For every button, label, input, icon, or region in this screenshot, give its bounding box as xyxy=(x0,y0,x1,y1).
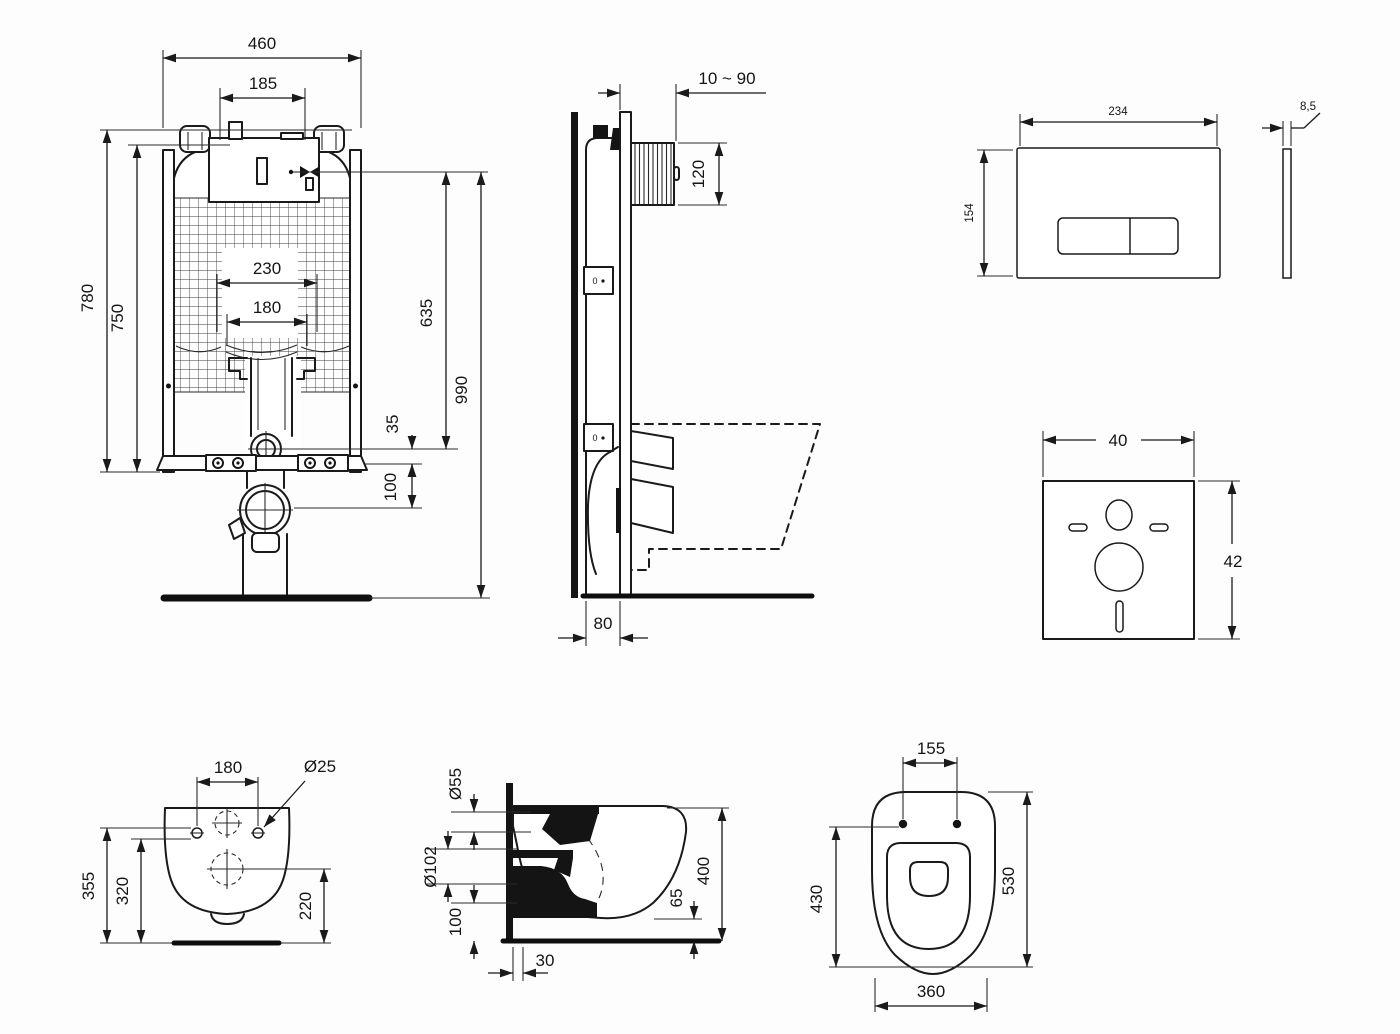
pan-bracket-upper xyxy=(631,431,673,469)
dim-seat-length: 430 xyxy=(807,885,826,913)
dim-valve-height-635: 635 xyxy=(417,299,436,327)
wall-section xyxy=(571,112,578,598)
insulation-mat xyxy=(1043,481,1194,639)
dim-height-320: 320 xyxy=(113,877,132,905)
dim-plate-width: 234 xyxy=(1108,106,1128,118)
dim-inlet-dia: Ø55 xyxy=(446,768,465,800)
seat-hinge-right xyxy=(953,820,961,828)
flush-plate-front-view: 234 154 xyxy=(964,106,1220,278)
seat-hinge-left xyxy=(899,820,907,828)
frame-profile xyxy=(586,138,620,595)
dim-offset-30: 30 xyxy=(536,951,555,970)
sound-insulation-mat-view: 40 42 xyxy=(1043,431,1242,639)
dim-fixing-spacing: 180 xyxy=(214,758,242,777)
service-box-slot xyxy=(257,158,267,184)
dim-outlet-dia: Ø102 xyxy=(421,846,440,888)
technical-drawing-canvas: 460 185 780 750 230 180 635 990 xyxy=(0,0,1400,1034)
dim-mat-height: 42 xyxy=(1224,552,1243,571)
installation-drawing: 460 185 780 750 230 180 635 990 xyxy=(0,0,1400,1034)
dim-outlet-height: 100 xyxy=(446,908,465,936)
wc-top-view: 155 530 430 360 xyxy=(807,739,1033,1012)
flush-plate-edge xyxy=(1283,149,1291,278)
dim-frame-height: 780 xyxy=(78,284,97,312)
fixing-point-label: 0 xyxy=(592,276,597,286)
fixing-point-lower: 0 xyxy=(584,424,613,451)
corrugated-flush-bend xyxy=(631,143,679,205)
frame-left-rail xyxy=(163,150,174,472)
dim-frame-width: 460 xyxy=(248,34,276,53)
flush-buttons xyxy=(1058,218,1178,254)
dim-plate-height: 154 xyxy=(964,203,976,223)
dim-mat-width: 40 xyxy=(1109,431,1128,450)
dim-plate-thickness: 8,5 xyxy=(1300,101,1316,113)
frame-front-view: 460 185 780 750 230 180 635 990 xyxy=(78,34,490,598)
frame-base xyxy=(157,455,367,471)
dim-rim-height: 400 xyxy=(694,857,713,885)
frame-front-rail xyxy=(620,112,631,595)
dim-pan-width: 360 xyxy=(917,982,945,1001)
flush-plate xyxy=(1017,148,1220,278)
wall-section xyxy=(506,783,513,941)
wc-rear-view: 180 Ø25 355 320 220 xyxy=(79,757,336,943)
svg-text:0: 0 xyxy=(592,433,597,443)
wc-side-section-view: Ø55 Ø102 100 30 65 400 xyxy=(421,768,729,981)
dim-height-220: 220 xyxy=(296,892,315,920)
drain-outlet xyxy=(229,471,293,552)
dim-fixing-hole-dia: Ø25 xyxy=(304,757,336,776)
dim-frame-depth: 80 xyxy=(594,614,613,633)
flush-plate-side-view: 8,5 xyxy=(1262,101,1320,278)
dim-bend-height: 120 xyxy=(689,160,708,188)
dim-height-355: 355 xyxy=(79,872,98,900)
dim-hinge-spacing: 155 xyxy=(917,739,945,758)
dim-inner-width-230: 230 xyxy=(253,259,281,278)
dim-inner-width-180: 180 xyxy=(253,298,281,317)
dim-offset-100: 100 xyxy=(381,473,400,501)
frame-side-view: 0 0 10 ~ 90 120 xyxy=(558,69,820,646)
frame-right-rail xyxy=(350,150,361,472)
dim-offset-35: 35 xyxy=(383,415,402,434)
pan-bracket-lower xyxy=(631,479,673,533)
fixing-point-upper: 0 xyxy=(584,267,613,294)
pan-outlet-bump xyxy=(211,914,244,924)
filler-cap xyxy=(593,125,608,138)
dim-valve-height-990: 990 xyxy=(452,376,471,404)
bowl-opening xyxy=(910,862,948,896)
dim-cistern-height: 750 xyxy=(108,304,127,332)
dim-service-width: 185 xyxy=(249,74,277,93)
dim-clearance-65: 65 xyxy=(667,889,686,908)
dim-adjust-range: 10 ~ 90 xyxy=(698,69,755,88)
dim-pan-length: 530 xyxy=(999,867,1018,895)
